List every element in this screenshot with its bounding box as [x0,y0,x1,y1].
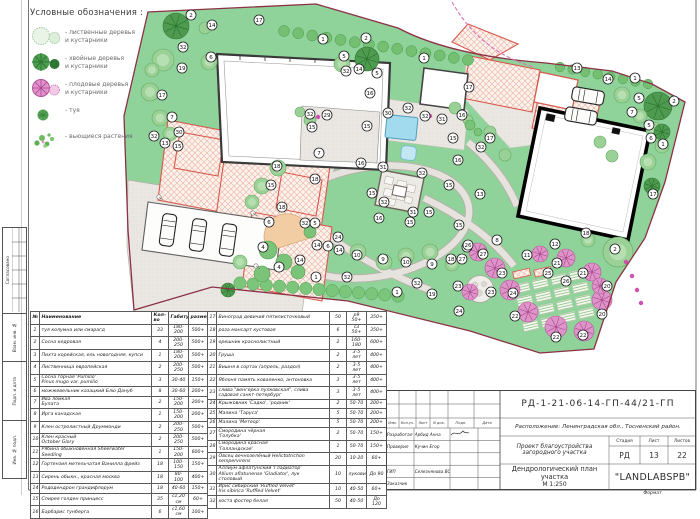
drawing-title-cell: Дендрологический план участка М 1:250 [500,464,609,490]
svg-text:5: 5 [375,71,379,77]
table-row: 32хоста фостер белая5040-50До 120 [208,496,387,509]
svg-text:15: 15 [308,125,316,131]
svg-text:32: 32 [421,114,428,120]
drawing-sheet: 2141712326195321451617732301315322915715… [0,0,700,495]
svg-text:1: 1 [321,37,325,43]
document-number: РД-1-21-06-14-ГП-44/21-ГП [500,390,696,418]
svg-text:15: 15 [449,136,457,142]
svg-text:32: 32 [306,112,313,118]
frame-box-vzam: Взам. инв. № [3,314,26,362]
svg-text:7: 7 [317,151,321,157]
stage-values: РД 13 22 [609,446,696,464]
svg-text:4: 4 [261,245,265,251]
frame-grid [12,228,26,313]
title-block: Изм.Кол.уч.ЛистN док.Подп.Дата Разработа… [386,390,696,490]
svg-text:32: 32 [380,200,387,206]
svg-text:16: 16 [357,161,365,167]
svg-text:16: 16 [375,216,383,222]
svg-text:32: 32 [342,69,349,75]
svg-text:6: 6 [649,136,653,142]
table-row: 24Крыжовник 'Садко', 'родник'250-70200+ [208,399,387,409]
svg-text:14: 14 [355,67,363,73]
svg-text:32: 32 [343,275,350,281]
svg-text:32: 32 [179,45,186,51]
svg-text:10: 10 [353,253,361,259]
signature-row: ГИПСелезнянова ВС [386,465,500,477]
table-row: 10Клен красный October Glory2200-250500+ [31,434,208,447]
svg-text:18: 18 [273,164,281,170]
tb-header-col: Лист [416,418,430,428]
svg-text:22: 22 [579,333,586,339]
svg-text:26: 26 [562,279,570,285]
svg-text:17: 17 [649,192,657,198]
column-header: Наименование [40,312,152,325]
svg-text:23: 23 [454,284,462,290]
svg-text:15: 15 [406,220,414,226]
svg-text:5: 5 [342,54,346,60]
svg-text:17: 17 [255,18,263,24]
legend-item-label: - туя [65,103,80,115]
svg-text:17: 17 [158,93,166,99]
location-line: Расположение: Ленинградская обл., Тоснен… [500,418,696,436]
table-row: 11Рябина обыкновенная Sheerwater Seedlin… [31,446,208,459]
table-row: 19орешник краснолистный2160-180600+ [208,337,387,350]
svg-text:19: 19 [178,66,186,72]
svg-text:20: 20 [603,284,611,290]
signature-row [386,453,500,465]
stage-labels: Стадия Лист Листов [609,436,696,446]
legend-item: - вьющиеся растения [30,129,152,151]
svg-text:17: 17 [486,136,494,142]
svg-text:23: 23 [498,271,506,277]
legend-item: - хвойные деревья и кустарники [30,51,152,73]
legend-item: - плодовые деревья и кустарники [30,77,152,99]
tb-header-col: N док. [430,418,448,428]
legend-item-label: - вьющиеся растения [65,129,133,141]
table-row: 7Ива ломкая Булата2150-200200+ [31,396,208,409]
stage-label: Стадия [609,439,640,444]
svg-text:1: 1 [422,56,426,62]
titleblock-signature-rows: РазработалАрбид АннаПроверилКучин ЕгорГИ… [386,428,500,490]
legend: Условные обозначения : - лиственные дере… [30,8,152,155]
svg-text:9: 9 [430,262,434,268]
signature-row: РазработалАрбид Анна [386,428,500,440]
frame-label-vzam: Взам. инв. № [12,323,17,352]
svg-text:15: 15 [174,144,182,150]
svg-text:15: 15 [267,183,275,189]
svg-text:32: 32 [477,145,484,151]
table-row: 3Пихта корейская, ель новогодняя, купси1… [31,349,208,362]
tb-header-col: Кол.уч. [399,418,416,428]
svg-text:32: 32 [301,221,308,227]
svg-text:6: 6 [326,244,330,250]
svg-text:27: 27 [458,257,466,263]
table-row: 31Ирис сибирский 'Ruffled Velvet' Iris s… [208,483,387,496]
table-row: 21Вишня в сортах (апрель, раздол)23-5 ле… [208,362,387,375]
svg-text:17: 17 [465,85,473,91]
guest-house [518,108,650,240]
svg-text:14: 14 [313,243,321,249]
table-row: 16Барбарис тунберга6с1,60 см100+ [31,506,208,519]
svg-text:31: 31 [409,210,417,216]
company-name: "LANDLABSPB" [609,464,696,490]
table-row: 9Клен остролистный Друммонди2200-250500+ [31,421,208,434]
svg-text:13: 13 [573,66,581,72]
table-row: 17Виноград девичий пятилисточковый50р9 5… [208,312,387,325]
svg-text:23: 23 [487,290,495,296]
legend-title: Условные обозначения : [30,8,152,18]
svg-text:14: 14 [604,77,612,83]
svg-text:11: 11 [523,253,531,259]
svg-text:30: 30 [384,111,392,117]
svg-text:2: 2 [189,13,193,19]
svg-text:15: 15 [455,223,463,229]
svg-text:2: 2 [672,99,676,105]
frame-box-inv: Инв. № подл. [3,421,26,478]
svg-text:32: 32 [413,281,420,287]
svg-text:14: 14 [208,23,216,29]
signature-icon [450,429,470,438]
sheet-number: 13 [640,451,668,460]
tb-header-col: Изм. [386,418,399,428]
table-row: 15Спирея голден принцесс35с1,20 см60+ [31,493,208,506]
svg-text:15: 15 [363,124,371,130]
svg-text:25: 25 [544,271,552,277]
pool [385,114,418,140]
signature-row: ПроверилКучин Егор [386,440,500,452]
svg-text:15: 15 [445,183,453,189]
svg-text:22: 22 [552,335,559,341]
table-row: 5Сосна горная 'Pumilio' Pinus mugo var. … [31,374,208,387]
svg-text:18: 18 [278,205,286,211]
table-row: 2Сосна кедровая4200-250500+ [31,337,208,350]
drawing-scale: М 1:250 [542,481,566,489]
svg-text:18: 18 [582,231,590,237]
tb-header-col: Дата [474,418,500,428]
svg-text:15: 15 [368,191,376,197]
legend-item-label: - плодовые деревья и кустарники [65,77,128,96]
conifer-trees-icon [30,51,60,73]
svg-text:24: 24 [334,235,342,241]
svg-text:7: 7 [170,115,174,121]
svg-text:1: 1 [314,275,318,281]
svg-text:24: 24 [455,309,463,315]
svg-text:16: 16 [366,91,374,97]
svg-text:32: 32 [404,106,411,112]
stage-value: РД [609,451,640,460]
svg-text:14: 14 [296,258,304,264]
svg-text:1: 1 [661,142,665,148]
svg-text:31: 31 [438,117,446,123]
hot-tub [400,145,416,160]
drawing-title: Дендрологический план участка [500,465,609,481]
table-row: 25Малина 'Таруса'550-70200+ [208,409,387,419]
svg-text:6: 6 [267,220,271,226]
svg-text:16: 16 [458,113,466,119]
legend-item-label: - хвойные деревья и кустарники [65,51,124,70]
svg-text:22: 22 [511,314,518,320]
column-header: размер [189,312,208,325]
legend-item: - туя [30,103,152,125]
frame-box-podp: Подп. и дата [3,362,26,420]
svg-text:10: 10 [402,260,410,266]
frame-box-approved: Согласовано [3,228,26,314]
svg-text:5: 5 [313,221,317,227]
svg-text:2: 2 [613,247,617,253]
table-row: 4Лиственница европейская2200-250500+ [31,362,208,375]
svg-text:1: 1 [633,76,637,82]
table-row: 14Рододендрон грандифлорум1840-60150+ [31,484,208,494]
pool-house [420,68,468,110]
svg-text:16: 16 [454,158,462,164]
sheets-total: 22 [668,451,696,460]
svg-text:4: 4 [277,265,281,271]
svg-text:31: 31 [379,165,387,171]
table-row: 23слива "венгерка пулковская", слива сад… [208,387,387,400]
svg-text:20: 20 [598,312,606,318]
svg-text:5: 5 [637,96,641,102]
svg-text:12: 12 [551,242,558,248]
sheets-label: Листов [668,439,696,444]
table-row: 28Смородина красная 'Голландская'150-701… [208,440,387,453]
svg-text:15: 15 [425,210,433,216]
frame-label-podp: Подп. и дата [12,377,17,406]
svg-text:21: 21 [553,261,561,267]
column-header: Кол-во [152,312,169,325]
signature-row: Заказчик [386,478,500,490]
legend-item: - лиственные деревья и кустарники [30,25,152,47]
frame-label-approved: Согласовано [5,256,10,284]
table-row: 29Овсец вечнозелёный Helictotrichon semp… [208,453,387,466]
svg-text:24: 24 [509,291,517,297]
table-row: 30Аллиум афлатунский 'Гладиатор' Allium … [208,465,387,483]
svg-text:18: 18 [311,177,319,183]
svg-text:8: 8 [495,238,499,244]
svg-text:21: 21 [579,271,587,277]
titleblock-header-columns: Изм.Кол.уч.ЛистN док.Подп.Дата [386,418,500,428]
svg-text:30: 30 [175,130,183,136]
svg-text:14: 14 [335,248,343,254]
table-row: 13Сирень обыкн., красная москва1880-1004… [31,471,208,484]
table-row: 26Малина 'Метеор'550-70200+ [208,418,387,428]
climbing-plants-icon [30,129,60,151]
legend-item-label: - лиственные деревья и кустарники [65,25,135,44]
column-header: № [31,312,40,325]
table-row: 27Смородина чёрная 'Голубка'250-70150+ [208,428,387,441]
svg-text:18: 18 [447,257,455,263]
table-row: 1туя колумна или смарагд33180-200500+ [31,324,208,337]
svg-text:13: 13 [161,141,169,147]
svg-text:1: 1 [395,290,399,296]
plant-table-right: 17Виноград девичий пятилисточковый50р9 5… [207,311,387,509]
table-row: 18роза мансарт кустовая6с3 50+350+ [208,324,387,337]
table-row: 12Гортензия метельчатая Ванилла фрейз181… [31,459,208,472]
svg-text:29: 29 [323,113,331,119]
svg-text:27: 27 [479,252,487,258]
table-row: 20Груша23-5 лет400+ [208,349,387,362]
frame-label-inv: Инв. № подл. [12,435,17,465]
format-label: Формат [609,490,696,496]
svg-text:19: 19 [428,292,436,298]
svg-text:32: 32 [418,171,425,177]
svg-text:5: 5 [647,123,651,129]
svg-text:13: 13 [476,192,484,198]
thuja-icon [30,103,60,125]
svg-text:9: 9 [381,257,385,263]
svg-text:2: 2 [364,36,368,42]
project-name: Проект благоустройства загородного участ… [500,436,609,464]
deciduous-trees-icon [30,25,60,47]
plant-table-left: №НаименованиеКол-воГабитусразмер1туя кол… [30,311,208,519]
table-row: 6можжевельник казацкий Блю Дануб830-6020… [31,387,208,397]
svg-text:7: 7 [630,110,634,116]
tb-header-col: Подп. [448,418,474,428]
sheet-label: Лист [640,439,668,444]
fruit-trees-icon [30,77,60,99]
table-row: 22Яблоня память коваленко, антоновка33-5… [208,374,387,387]
table-header-row: №НаименованиеКол-воГабитусразмер [31,312,208,325]
svg-text:26: 26 [464,243,472,249]
column-header: Габитус [169,312,189,325]
table-row: 8Ирга канадская1150-200200+ [31,409,208,422]
frame-strip: Согласовано Взам. инв. № Подп. и дата Ин… [2,227,27,479]
svg-text:6: 6 [209,55,213,61]
